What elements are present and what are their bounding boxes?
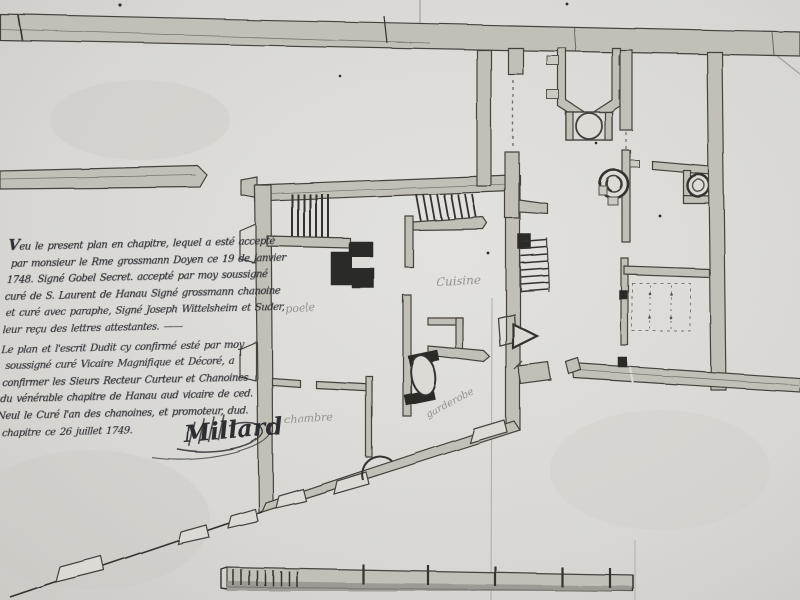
well-under-bay bbox=[566, 112, 612, 140]
east-boundary-wall bbox=[707, 52, 726, 390]
room-label-poele: poele bbox=[285, 301, 316, 316]
plan-photograph: poele Cuisine chambre garderobe Millard … bbox=[0, 0, 800, 600]
room-label-chambre: chambre bbox=[283, 410, 333, 426]
bay-side-post bbox=[620, 50, 632, 130]
room-label-cuisine: Cuisine bbox=[436, 273, 482, 289]
wall-fragment bbox=[518, 362, 551, 384]
courtyard-pillar bbox=[477, 50, 491, 186]
manuscript-note: Veu le present plan en chapitre, lequel … bbox=[0, 231, 283, 443]
